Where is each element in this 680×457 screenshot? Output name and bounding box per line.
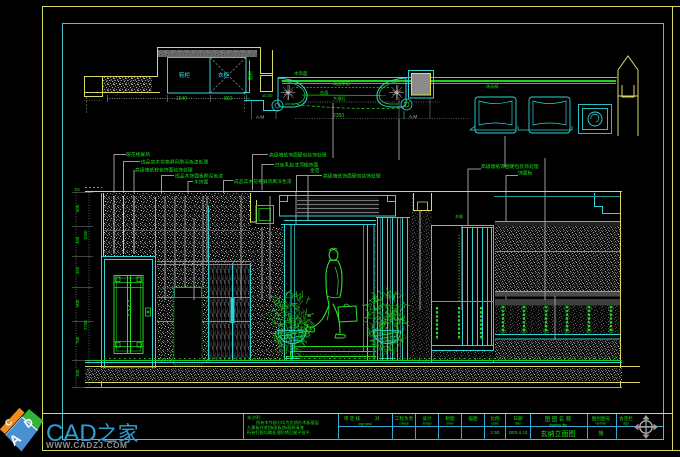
svg-text:2001.6.10: 2001.6.10 — [509, 430, 528, 435]
svg-text:1:50: 1:50 — [491, 430, 500, 435]
svg-text:饰面板: 饰面板 — [518, 170, 533, 177]
svg-text:2750: 2750 — [83, 320, 88, 330]
svg-text:1050: 1050 — [83, 230, 88, 240]
svg-text:玄纳立面图: 玄纳立面图 — [541, 429, 576, 438]
svg-text:鞋柜: 鞋柜 — [179, 71, 191, 79]
svg-text:±0.00: ±0.00 — [262, 93, 273, 98]
svg-text:施: 施 — [598, 430, 603, 437]
svg-text:600: 600 — [75, 204, 80, 212]
svg-text:衣柜: 衣柜 — [218, 71, 230, 79]
svg-text:成品实木花格屏风刷深色漆: 成品实木花格屏风刷深色漆 — [234, 178, 292, 185]
svg-text:金箔: 金箔 — [310, 167, 320, 174]
svg-text:所有钉眼均需处理防锈后腻子批平.: 所有钉眼均需处理防锈后腻子批平. — [247, 429, 311, 436]
svg-text:白色乳胶漆顶棚饰面: 白色乳胶漆顶棚饰面 — [275, 162, 318, 169]
svg-text:charge: charge — [399, 422, 409, 426]
svg-text:鞋柜: 鞋柜 — [247, 71, 254, 80]
svg-text:WWW.CADZJ.COM: WWW.CADZJ.COM — [46, 441, 127, 450]
svg-text:成品实木花格屏风刷深色漆处理: 成品实木花格屏风刷深色漆处理 — [141, 159, 208, 166]
svg-text:450: 450 — [75, 266, 80, 274]
svg-text:审 定 核: 审 定 核 — [344, 415, 361, 422]
svg-text:高级墙纸饰面硬包装饰处理: 高级墙纸饰面硬包装饰处理 — [269, 152, 327, 159]
svg-text:木格: 木格 — [455, 213, 463, 219]
svg-text:休闲椅: 休闲椅 — [486, 83, 499, 90]
svg-text:150: 150 — [75, 369, 80, 377]
svg-text:成品字画: 成品字画 — [333, 80, 350, 87]
svg-text:描图: 描图 — [468, 415, 478, 422]
svg-text:sign seal: sign seal — [358, 422, 372, 426]
svg-text:高级墙纸软包饰面装饰处理: 高级墙纸软包饰面装饰处理 — [135, 167, 193, 174]
svg-text:图 图 名 称: 图 图 名 称 — [545, 415, 572, 423]
svg-text:design: design — [422, 422, 432, 426]
svg-text:draw: draw — [447, 422, 455, 426]
svg-text:成品木饰面板刷深色漆: 成品木饰面板刷深色漆 — [175, 173, 223, 180]
svg-text:A.M: A.M — [409, 114, 417, 119]
svg-text:600: 600 — [75, 299, 80, 307]
svg-text:drawing title: drawing title — [549, 423, 567, 427]
svg-text:高级墙纸饰面硬包装饰处理: 高级墙纸饰面硬包装饰处理 — [481, 163, 539, 170]
svg-text:750: 750 — [75, 336, 80, 344]
svg-text:玻花格屏风: 玻花格屏风 — [126, 151, 150, 158]
svg-text:2350: 2350 — [333, 113, 344, 119]
svg-text:1540: 1540 — [176, 96, 187, 102]
svg-text:木饰面: 木饰面 — [294, 70, 308, 77]
svg-text:7%: 7% — [74, 187, 80, 192]
svg-text:860: 860 — [224, 96, 233, 102]
svg-text:大理石: 大理石 — [333, 95, 346, 102]
svg-text:date: date — [515, 422, 521, 426]
svg-text:450: 450 — [75, 236, 80, 244]
svg-text:台面: 台面 — [320, 89, 328, 96]
svg-text:木饰面: 木饰面 — [194, 179, 209, 186]
svg-text:高级墙纸饰面硬包装饰处理: 高级墙纸饰面硬包装饰处理 — [323, 173, 381, 180]
svg-text:number: number — [596, 422, 608, 426]
svg-text:sign: sign — [623, 422, 629, 426]
svg-text:对: 对 — [375, 415, 380, 421]
svg-text:A.M: A.M — [256, 115, 264, 120]
svg-text:scale: scale — [491, 422, 499, 426]
